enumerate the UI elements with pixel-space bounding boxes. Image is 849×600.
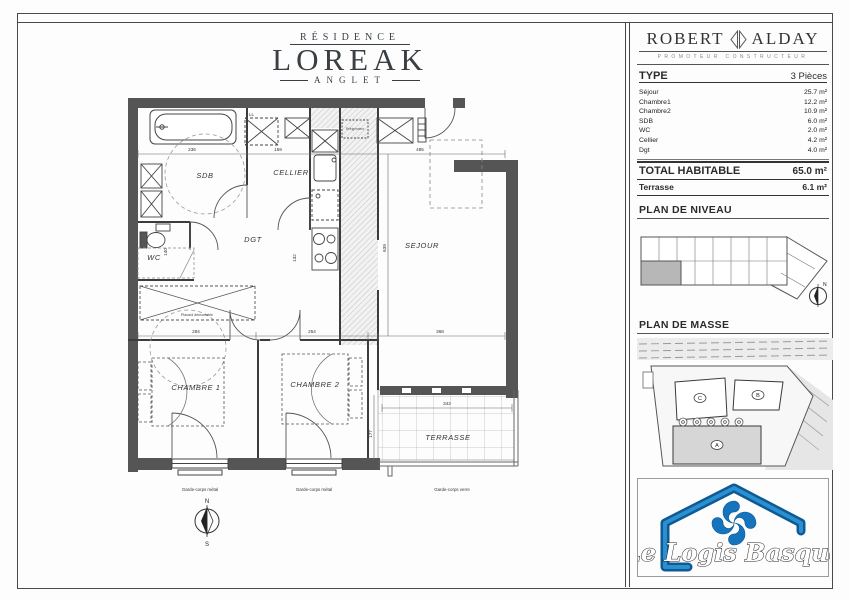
room-label-dgt: DGT — [244, 235, 262, 244]
brand-logo-box: Le Logis Basque — [637, 478, 829, 577]
total-label: TOTAL HABITABLE — [639, 165, 740, 177]
le-logis-basque-logo: Le Logis Basque — [638, 479, 830, 574]
dim-sdb: 236 — [188, 147, 196, 152]
fridge-label: Réfrigérateur — [346, 127, 366, 131]
room-label-cellier: CELLIER — [273, 168, 308, 177]
dim-terrasse-w: 343 — [443, 401, 451, 406]
table-row: Dgt4.0 m² — [639, 146, 827, 156]
dim-chambre2: 254 — [308, 329, 316, 334]
building-label-b: B — [756, 393, 760, 399]
plan-niveau-drawing: N — [637, 223, 833, 311]
builder-name-right: ALDAY — [752, 29, 820, 49]
bathtub — [150, 110, 236, 144]
interior-walls — [128, 108, 378, 458]
builder-subtitle: PROMOTEUR CONSTRUCTEUR — [639, 52, 827, 62]
table-row: Chambre112.2 m² — [639, 98, 827, 108]
type-row: TYPE 3 Pièces — [637, 65, 829, 83]
placard: Placard démontable — [140, 286, 255, 320]
entry-zone — [430, 140, 482, 208]
bed-chambre1 — [138, 358, 224, 426]
terrasse-label: Terrasse — [639, 182, 674, 192]
niveau-compass-n: N — [823, 282, 827, 288]
brand-name: Le Logis Basque — [638, 538, 830, 567]
garde-corps-metal-1: Garde-corps métal — [182, 487, 218, 492]
garde-corps-metal-2: Garde-corps métal — [296, 487, 332, 492]
type-value: 3 Pièces — [771, 71, 827, 83]
washbasins — [141, 164, 162, 217]
table-row: WC2.0 m² — [639, 126, 827, 136]
room-label-sdb: SDB — [196, 171, 213, 180]
north-compass-icon: N S — [195, 499, 219, 548]
building-label-a: A — [715, 443, 719, 449]
garde-corps-verre: Garde-corps verre — [434, 487, 470, 492]
compass-n: N — [205, 499, 209, 505]
dim-terrasse-h: 177 — [368, 430, 373, 438]
highlighted-unit — [641, 261, 681, 285]
dim-chambre1: 284 — [192, 329, 200, 334]
room-label-terrasse: TERRASSE — [425, 433, 471, 442]
type-label: TYPE — [639, 70, 771, 83]
dim-sejour-bottom: 368 — [436, 329, 444, 334]
total-value: 65.0 m² — [793, 166, 827, 177]
dim-sejour-h: 639 — [382, 244, 387, 252]
total-habitable-row: TOTAL HABITABLE 65.0 m² — [637, 161, 829, 180]
terrasse-row: Terrasse 6.1 m² — [637, 180, 829, 196]
laundry-label: LL — [249, 112, 254, 117]
terrasse-value: 6.1 m² — [802, 182, 827, 192]
niveau-compass-icon: N — [810, 282, 828, 307]
plan-masse-drawing: C B A — [637, 338, 833, 470]
plan-niveau-title: PLAN DE NIVEAU — [637, 196, 829, 219]
builder-name-left: ROBERT — [647, 29, 725, 49]
plan-masse-title: PLAN DE MASSE — [637, 311, 829, 334]
placard-label: Placard démontable — [181, 313, 213, 317]
table-row: Séjour25.7 m² — [639, 88, 827, 98]
room-areas-table: Séjour25.7 m² Chambre112.2 m² Chambre210… — [637, 83, 829, 160]
room-label-chambre2: CHAMBRE 2 — [290, 380, 339, 389]
floorplan-drawing: LL Réfrigérateur Placard démontable — [110, 90, 530, 550]
dim-wc: 140 — [163, 248, 168, 256]
toilet — [140, 224, 170, 248]
table-row: SDB6.0 m² — [639, 117, 827, 127]
info-panel: ROBERT ALDAY PROMOTEUR CONSTRUCTEUR TYPE… — [625, 22, 835, 587]
dim-cellier: 159 — [274, 147, 282, 152]
kitchen-appliances — [312, 130, 338, 270]
room-label-chambre1: CHAMBRE 1 — [171, 383, 220, 392]
dim-dgt: 132 — [292, 254, 297, 262]
table-row: Cellier4.2 m² — [639, 136, 827, 146]
builder-logo: ROBERT ALDAY PROMOTEUR CONSTRUCTEUR — [637, 22, 829, 65]
residence-logo: RÉSIDENCE LOREAK ANGLET — [248, 27, 452, 85]
room-label-sejour: SEJOUR — [405, 241, 439, 250]
room-label-wc: WC — [147, 253, 161, 262]
floorplan-sheet: RÉSIDENCE LOREAK ANGLET — [0, 0, 849, 600]
builder-diamond-icon — [730, 30, 747, 49]
table-row: Chambre210.9 m² — [639, 107, 827, 117]
residence-name: LOREAK — [248, 45, 452, 75]
dim-sejour-w: 485 — [416, 147, 424, 152]
compass-s: S — [205, 542, 209, 548]
building-label-c: C — [698, 396, 702, 402]
